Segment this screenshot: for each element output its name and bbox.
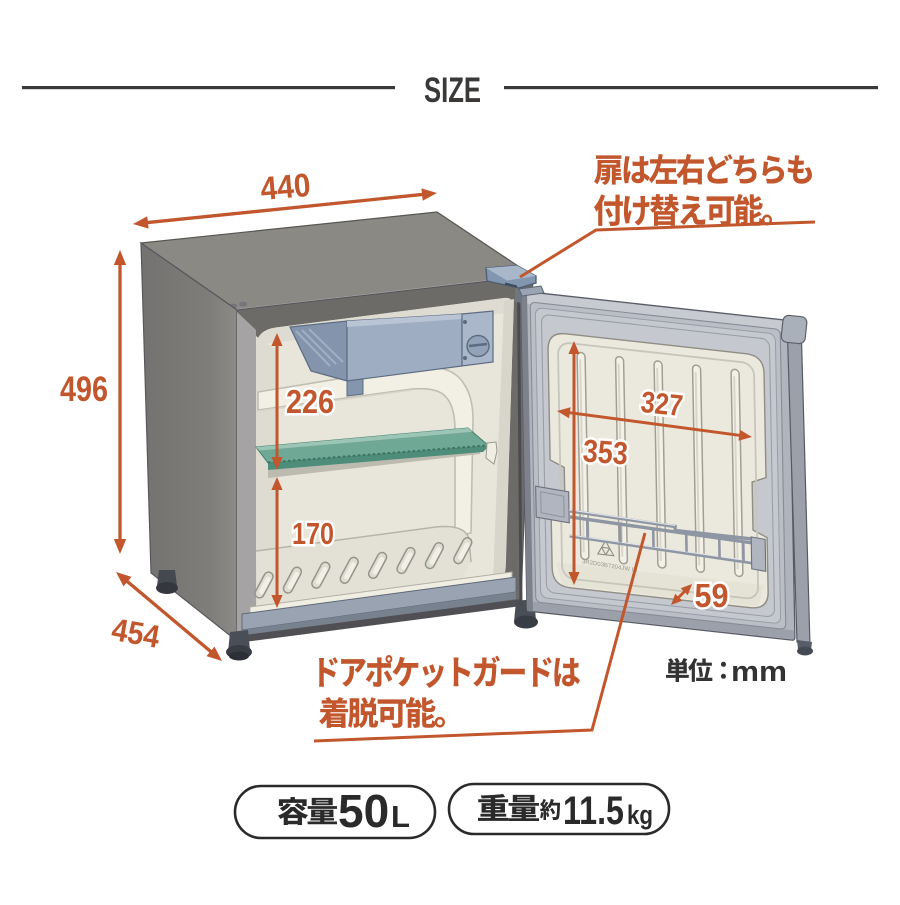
svg-text:170: 170 [292,516,334,551]
svg-text:mm: mm [731,656,787,688]
svg-text:454: 454 [109,611,163,655]
svg-text:440: 440 [259,166,312,207]
svg-text:496: 496 [60,370,108,409]
svg-text:327: 327 [639,386,684,423]
svg-text:L: L [391,799,410,834]
svg-text:kg: kg [627,800,653,830]
svg-text:SIZE: SIZE [424,71,481,110]
svg-text:59: 59 [695,577,729,614]
svg-text:353: 353 [582,432,629,471]
svg-text:50: 50 [338,785,389,837]
svg-text:226: 226 [286,383,334,420]
svg-text:11.5: 11.5 [563,789,624,833]
